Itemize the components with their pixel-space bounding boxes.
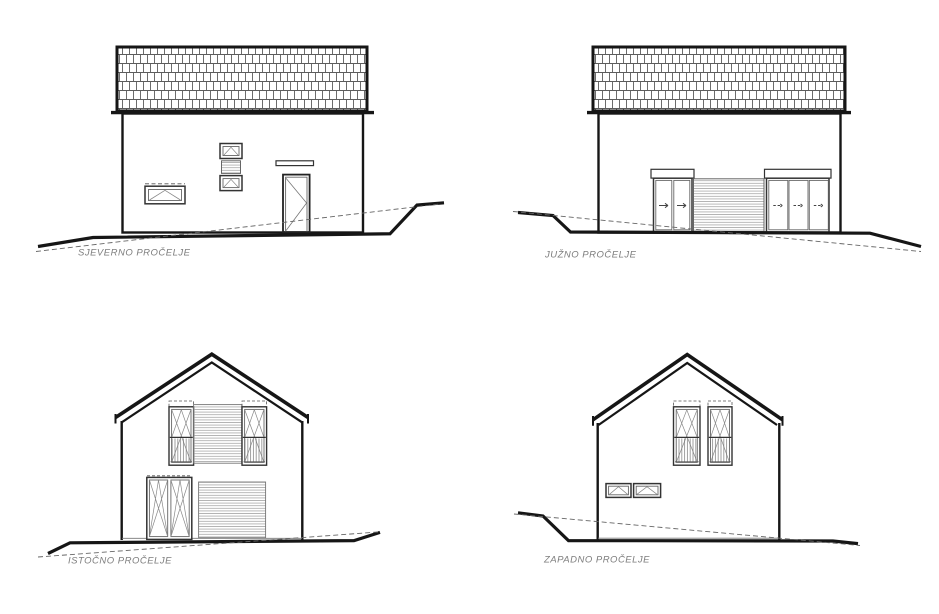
west-elevation-label: ZAPADNO PROČELJE [543, 555, 650, 566]
east-window-upper-right-shutter-box [242, 401, 267, 407]
west-window-tall-right-railing-bars [711, 439, 729, 462]
west-elevation: ZAPADNO PROČELJE [514, 355, 860, 566]
east-window-upper-left-railing-bars [172, 439, 190, 462]
north-door-frame [283, 175, 310, 232]
south-elevation: JUŽNO PROČELJE [513, 47, 921, 261]
west-window-tall-right [708, 401, 732, 465]
south-elevation-label: JUŽNO PROČELJE [544, 250, 637, 261]
south-sliding-door-right-header [765, 169, 832, 178]
west-ground-line [518, 513, 858, 544]
south-sliding-door-left [651, 169, 694, 232]
north-elevation: SJEVERNO PROČELJE [36, 47, 444, 259]
south-sliding-door-left-header [651, 169, 694, 178]
north-wall [123, 114, 364, 233]
west-window-tall-left [674, 401, 701, 465]
north-roof-band [117, 47, 367, 111]
west-window-tall-left-railing-bars [677, 439, 697, 462]
east-door-lower [147, 476, 192, 540]
south-roof-band [593, 47, 845, 111]
north-window-wide [145, 184, 185, 204]
west-window-tall-left-shutter-box [674, 401, 701, 407]
east-elevation-label: ISTOČNO PROČELJE [68, 556, 172, 567]
south-sliding-door-right [765, 169, 832, 232]
east-window-upper-left [169, 401, 194, 465]
south-louver-panel [694, 179, 765, 232]
east-elevation: ISTOČNO PROČELJE [38, 354, 380, 566]
north-louver-band [222, 161, 241, 174]
north-door-lintel [276, 161, 314, 166]
east-window-upper-right [242, 401, 267, 465]
west-window-small-right-frame [634, 484, 661, 498]
elevations-drawing: SJEVERNO PROČELJE [0, 0, 939, 614]
north-window-wide-frame [145, 186, 185, 204]
east-window-upper-left-shutter-box [169, 401, 194, 407]
east-lower-louver-panel [199, 482, 266, 538]
west-window-small-pair [606, 484, 661, 498]
north-elevation-label: SJEVERNO PROČELJE [78, 248, 191, 259]
east-door-lower-frame [147, 477, 192, 539]
west-window-small-left-frame [606, 484, 631, 498]
elevation-sheet: SJEVERNO PROČELJE [0, 0, 939, 614]
north-window-stack [220, 144, 242, 191]
west-window-tall-right-shutter-box [708, 401, 732, 407]
east-upper-louver-panel [194, 405, 242, 464]
east-window-upper-right-railing-bars [245, 439, 263, 462]
